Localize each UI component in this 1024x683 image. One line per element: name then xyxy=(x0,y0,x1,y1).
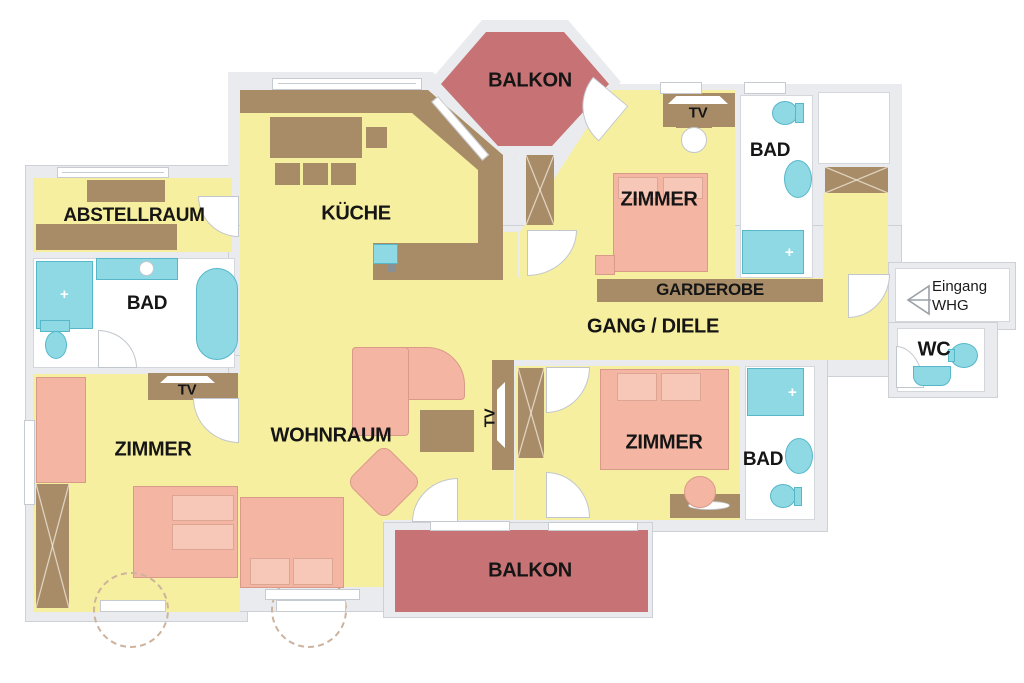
wc-sink-icon xyxy=(913,366,951,386)
bathtub-icon xyxy=(196,268,238,360)
toilet-icon xyxy=(45,331,67,359)
floor-niche-top-right xyxy=(818,92,890,164)
room-label-gang-diele: GANG / DIELE xyxy=(587,316,719,339)
room-label-garderobe: GARDEROBE xyxy=(656,280,764,300)
window xyxy=(744,82,786,94)
window xyxy=(272,78,422,90)
room-label-balkon-top: BALKON xyxy=(488,70,572,93)
room-label-bad-br: BAD xyxy=(743,449,783,471)
nightstand xyxy=(595,255,615,275)
kitchen-chair xyxy=(303,163,328,185)
room-label-kueche: KÜCHE xyxy=(321,203,391,226)
room-label-wohnraum: WOHNRAUM xyxy=(271,425,392,448)
room-label-zimmer-tr: ZIMMER xyxy=(620,189,697,212)
storage-shelf xyxy=(36,224,177,250)
room-label-wc: WC xyxy=(918,339,951,362)
corner-sofa xyxy=(352,347,409,436)
toilet-tank xyxy=(794,487,802,506)
toilet-tank xyxy=(795,103,804,123)
entrance-label-line1: Eingang xyxy=(932,278,987,295)
closet-top-right xyxy=(526,155,554,225)
kitchen-sink-icon xyxy=(373,244,398,264)
toilet-icon xyxy=(770,484,796,508)
room-label-tv-left: TV xyxy=(178,382,197,399)
sofa-cushion xyxy=(250,558,290,585)
desk-chair xyxy=(684,476,716,508)
kitchen-chair xyxy=(331,163,356,185)
shower-head-icon: + xyxy=(788,388,797,398)
pillow xyxy=(172,495,234,521)
sink-counter xyxy=(96,258,178,280)
window xyxy=(100,600,166,612)
sink-icon xyxy=(785,438,813,474)
tv-icon xyxy=(668,96,728,104)
window xyxy=(276,600,346,612)
sink-icon xyxy=(784,160,812,198)
round-table xyxy=(681,127,707,153)
room-label-zimmer-br: ZIMMER xyxy=(625,432,702,455)
window xyxy=(24,420,35,505)
window-line xyxy=(62,172,164,173)
faucet-icon xyxy=(139,261,154,276)
room-label-tv-wohnraum: TV xyxy=(482,409,499,428)
room-label-tv-tr: TV xyxy=(689,105,708,122)
window xyxy=(660,82,702,94)
shower-icon xyxy=(742,230,804,274)
window xyxy=(548,522,638,531)
wardrobe-bottom-right xyxy=(518,368,544,458)
pillow xyxy=(172,524,234,550)
window xyxy=(265,589,360,600)
pillow xyxy=(661,373,701,401)
entrance-arrow-icon xyxy=(901,281,931,319)
room-label-zimmer-bl: ZIMMER xyxy=(114,439,191,462)
storage-shelf xyxy=(87,180,165,202)
wardrobe-bottom-left xyxy=(36,484,69,608)
kitchen-chair xyxy=(366,127,387,148)
sofa-cushion xyxy=(293,558,333,585)
pillow xyxy=(617,373,657,401)
shower-head-icon: + xyxy=(785,248,794,258)
entrance-label: Eingang WHG xyxy=(932,277,987,315)
entrance-label-line2: WHG xyxy=(932,297,969,314)
corridor-wardrobe xyxy=(825,167,888,193)
window-line xyxy=(278,83,416,84)
coffee-table xyxy=(420,410,474,452)
room-label-bad-left: BAD xyxy=(127,293,167,315)
sofa-bottom-left xyxy=(36,377,86,483)
floor-plan: + Eingang WHG + xyxy=(0,0,1024,683)
kitchen-table xyxy=(270,117,362,158)
kitchen-stove-knob xyxy=(388,264,396,272)
room-label-abstellraum: ABSTELLRAUM xyxy=(63,205,204,227)
window xyxy=(430,521,510,531)
room-label-balkon-bottom: BALKON xyxy=(488,560,572,583)
kitchen-chair xyxy=(275,163,300,185)
shower-head-icon: + xyxy=(60,290,69,300)
room-label-bad-tr: BAD xyxy=(750,140,790,162)
